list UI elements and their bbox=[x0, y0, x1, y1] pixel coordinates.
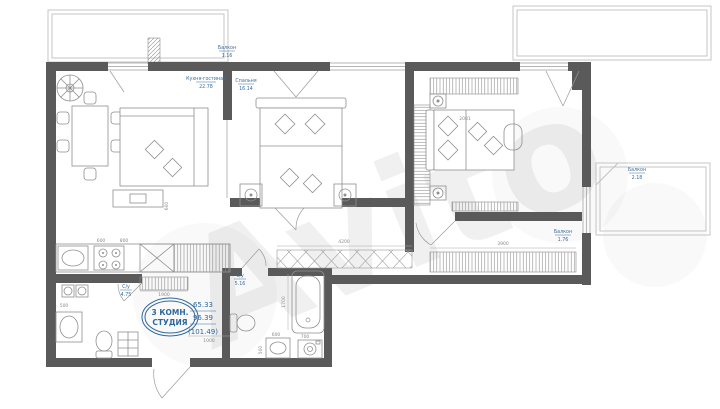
shelving-cabinet bbox=[118, 332, 138, 356]
wardrobe-corridor bbox=[277, 250, 412, 268]
dim-1900: 1900 bbox=[158, 292, 170, 298]
dim-700: 700 bbox=[301, 334, 310, 340]
svg-text:5.16: 5.16 bbox=[235, 281, 246, 287]
dim-500-v: 500 bbox=[258, 346, 264, 355]
svg-text:22.78: 22.78 bbox=[199, 84, 213, 90]
svg-text:4.75: 4.75 bbox=[121, 292, 132, 298]
svg-text:Спальня: Спальня bbox=[235, 78, 256, 84]
living-area: 65.33 bbox=[193, 301, 213, 309]
dim-1700: 1700 bbox=[281, 296, 287, 308]
dim-600-island: 600 bbox=[164, 202, 170, 211]
svg-text:16.14: 16.14 bbox=[239, 86, 253, 92]
label-balcony-right: Балкон 2.18 bbox=[628, 167, 646, 181]
svg-text:Балкон: Балкон bbox=[218, 45, 236, 51]
cabinet-bedroom2 bbox=[452, 202, 518, 211]
toilet-icon bbox=[96, 331, 112, 358]
stove-icon bbox=[94, 246, 124, 270]
nightstand-icon bbox=[430, 94, 446, 108]
label-kitchen-living: Кухня-гостиная 22.78 bbox=[186, 76, 226, 90]
label-bathroom-left: С/у 4.75 bbox=[120, 284, 132, 298]
door-entrance bbox=[154, 367, 190, 398]
tv-console bbox=[113, 190, 163, 207]
dim-4200: 4200 bbox=[338, 239, 350, 245]
bed-icon bbox=[256, 98, 346, 208]
dim-600-kitchen: 600 bbox=[97, 238, 106, 244]
floorplan-image: Avito bbox=[0, 0, 720, 409]
kitchen-sink-icon bbox=[58, 246, 88, 270]
dim-1000: 1000 bbox=[203, 338, 215, 344]
washer-icon bbox=[62, 285, 74, 297]
wardrobe-bedroom2 bbox=[430, 78, 518, 94]
svg-text:Кухня-гостиная: Кухня-гостиная bbox=[186, 76, 226, 82]
kitchen-cabinet-hatched bbox=[174, 244, 230, 272]
svg-text:Балкон: Балкон bbox=[628, 167, 646, 173]
svg-text:1.16: 1.16 bbox=[222, 53, 233, 59]
label-balcony-top: Балкон 1.16 bbox=[218, 45, 236, 59]
stamp-line1: 3 КОМН. bbox=[152, 308, 189, 317]
sink-icon bbox=[56, 312, 82, 342]
label-bedroom: Спальня 16.14 bbox=[235, 78, 256, 92]
plant-icon bbox=[57, 75, 83, 101]
total-area: 96.39 bbox=[193, 314, 213, 322]
floorplan-svg: Avito bbox=[0, 0, 720, 409]
dim-2081: 2081 bbox=[459, 116, 471, 122]
wardrobe-entry bbox=[140, 277, 188, 290]
dining-table bbox=[57, 92, 123, 180]
balcony-top-left bbox=[48, 10, 228, 64]
extended-area: (101.49) bbox=[188, 328, 218, 336]
dim-800-kitchen: 800 bbox=[120, 238, 129, 244]
window-bedroom1 bbox=[330, 63, 405, 70]
svg-text:1.76: 1.76 bbox=[558, 237, 569, 243]
sofa bbox=[120, 108, 208, 186]
dryer-icon bbox=[76, 285, 88, 297]
svg-text:С/у: С/у bbox=[236, 273, 244, 279]
double-door-bedroom1 bbox=[274, 71, 318, 97]
dim-500: 500 bbox=[60, 303, 69, 309]
svg-text:Балкон: Балкон bbox=[554, 229, 572, 235]
svg-text:С/у: С/у bbox=[122, 284, 130, 290]
balcony-top-right bbox=[513, 6, 711, 60]
dim-3900: 3900 bbox=[497, 241, 509, 247]
stamp-line2: СТУДИЯ bbox=[152, 318, 187, 327]
dim-600: 600 bbox=[272, 332, 281, 338]
svg-text:2.18: 2.18 bbox=[632, 175, 643, 181]
window-kitchen bbox=[108, 63, 148, 70]
wardrobe-hallway bbox=[430, 252, 576, 272]
